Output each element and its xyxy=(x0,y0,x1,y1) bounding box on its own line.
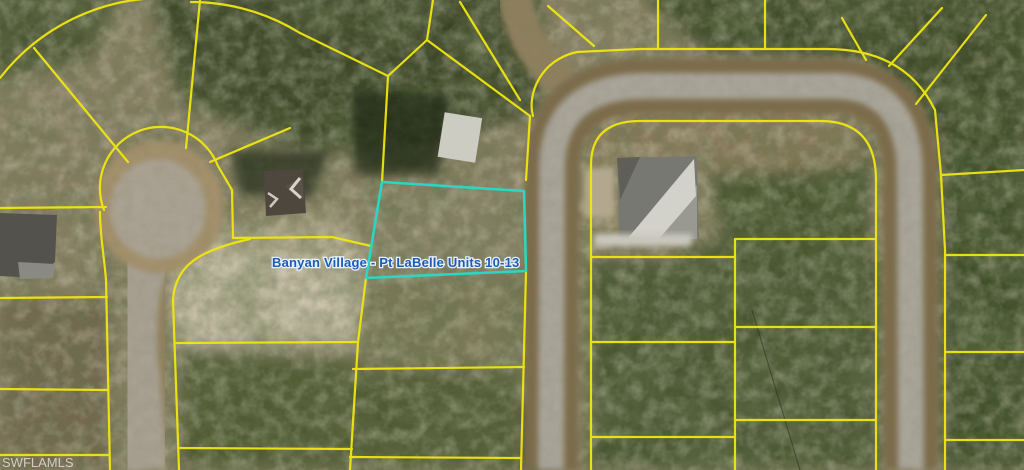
svg-text:Banyan Village - Pt LaBelle Un: Banyan Village - Pt LaBelle Units 10-13 xyxy=(272,255,519,270)
svg-text:SWFLAMLS: SWFLAMLS xyxy=(2,455,74,470)
